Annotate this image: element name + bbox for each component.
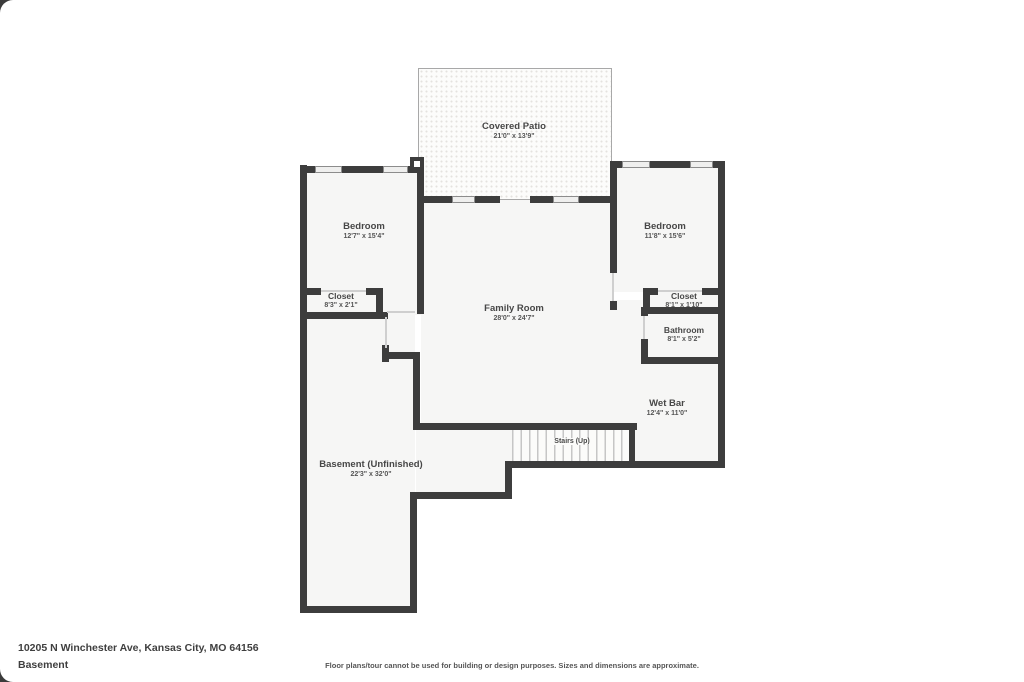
wall-post-center xyxy=(414,161,420,167)
room-dims: 8'1" x 5'2" xyxy=(664,336,704,344)
room-name: Family Room xyxy=(484,303,544,314)
room-name: Bedroom xyxy=(644,221,686,232)
window-symbol xyxy=(622,161,650,168)
wall xyxy=(641,357,725,364)
wall xyxy=(417,166,424,314)
wall xyxy=(610,161,617,273)
room-label-closet-left: Closet 8'3" x 2'1" xyxy=(324,292,357,310)
room-dims: 12'7" x 15'4" xyxy=(343,233,385,241)
room-label-family-room: Family Room 28'0" x 24'7" xyxy=(484,303,544,323)
room-label-stairs: Stairs (Up) xyxy=(550,438,593,445)
door-leaf xyxy=(385,317,387,348)
wall xyxy=(300,606,417,613)
window-symbol xyxy=(553,196,579,203)
wall xyxy=(300,288,321,295)
door-opening xyxy=(612,273,614,301)
room-name: Closet xyxy=(665,292,702,301)
floor-level-text: Basement xyxy=(18,659,68,671)
room-dims: 11'8" x 15'6" xyxy=(644,233,686,241)
room-dims: 8'3" x 2'1" xyxy=(324,302,357,310)
door-opening xyxy=(387,311,415,313)
room-label-bedroom-right: Bedroom 11'8" x 15'6" xyxy=(644,221,686,241)
room-label-closet-right: Closet 8'1" x 1'10" xyxy=(665,292,702,310)
room-dims: 12'4" x 11'0" xyxy=(647,410,688,418)
room-dims: 21'0" x 13'9" xyxy=(482,133,546,141)
room-label-bedroom-left: Bedroom 12'7" x 15'4" xyxy=(343,221,385,241)
room-name: Basement (Unfinished) xyxy=(319,459,422,470)
room-name: Covered Patio xyxy=(482,121,546,132)
room-name: Bedroom xyxy=(343,221,385,232)
room-dims: 28'0" x 24'7" xyxy=(484,315,544,323)
basement-corridor-area xyxy=(416,427,512,496)
room-dims: 22'3" x 32'0" xyxy=(319,471,422,479)
wall xyxy=(641,307,648,316)
stairs-treads xyxy=(512,430,629,461)
window-symbol xyxy=(690,161,713,168)
room-name: Closet xyxy=(324,292,357,301)
wall xyxy=(413,423,637,430)
wall xyxy=(410,492,417,613)
floor-plan-page: Covered Patio 21'0" x 13'9" Bedroom 12'7… xyxy=(0,0,1024,682)
wall xyxy=(413,352,420,430)
room-label-covered-patio: Covered Patio 21'0" x 13'9" xyxy=(482,121,546,141)
door-opening xyxy=(643,316,645,339)
wall xyxy=(718,161,725,468)
room-name: Bathroom xyxy=(664,326,704,335)
disclaimer-text: Floor plans/tour cannot be used for buil… xyxy=(325,661,699,670)
room-dims: 8'1" x 1'10" xyxy=(665,302,702,310)
wall xyxy=(300,165,307,613)
window-symbol xyxy=(315,166,342,173)
room-label-basement: Basement (Unfinished) 22'3" x 32'0" xyxy=(319,459,422,479)
address-text: 10205 N Winchester Ave, Kansas City, MO … xyxy=(18,642,259,654)
wall xyxy=(505,461,725,468)
room-name: Wet Bar xyxy=(647,398,688,409)
window-symbol xyxy=(383,166,408,173)
wall xyxy=(410,492,512,499)
wall xyxy=(629,428,635,465)
room-label-bathroom: Bathroom 8'1" x 5'2" xyxy=(664,326,704,344)
room-label-wet-bar: Wet Bar 12'4" x 11'0" xyxy=(647,398,688,418)
wall xyxy=(610,301,617,310)
wall xyxy=(300,312,388,319)
wall xyxy=(702,288,725,295)
window-symbol xyxy=(452,196,475,203)
